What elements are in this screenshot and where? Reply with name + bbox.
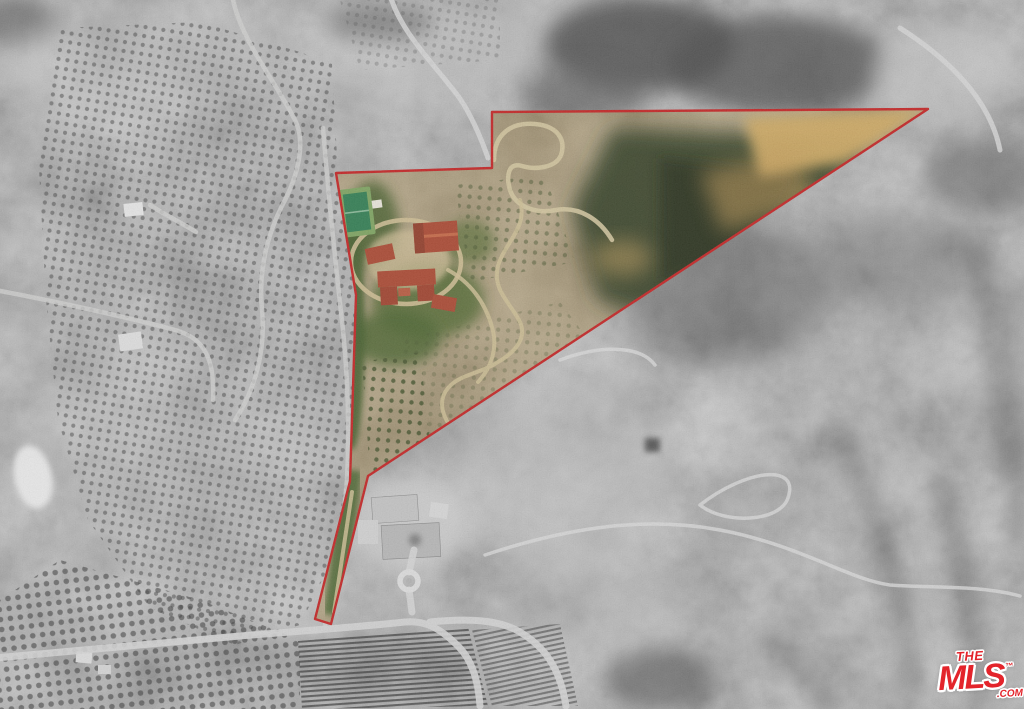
mls-logo-com: .COM: [997, 689, 1024, 700]
aerial-photo-canvas: [0, 0, 1024, 709]
mls-logo: THE MLS™ .COM: [935, 647, 1024, 707]
grain-overlay: [0, 0, 1024, 709]
trademark-symbol: ™: [1005, 661, 1013, 670]
aerial-photo: THE MLS™ .COM: [0, 0, 1024, 709]
